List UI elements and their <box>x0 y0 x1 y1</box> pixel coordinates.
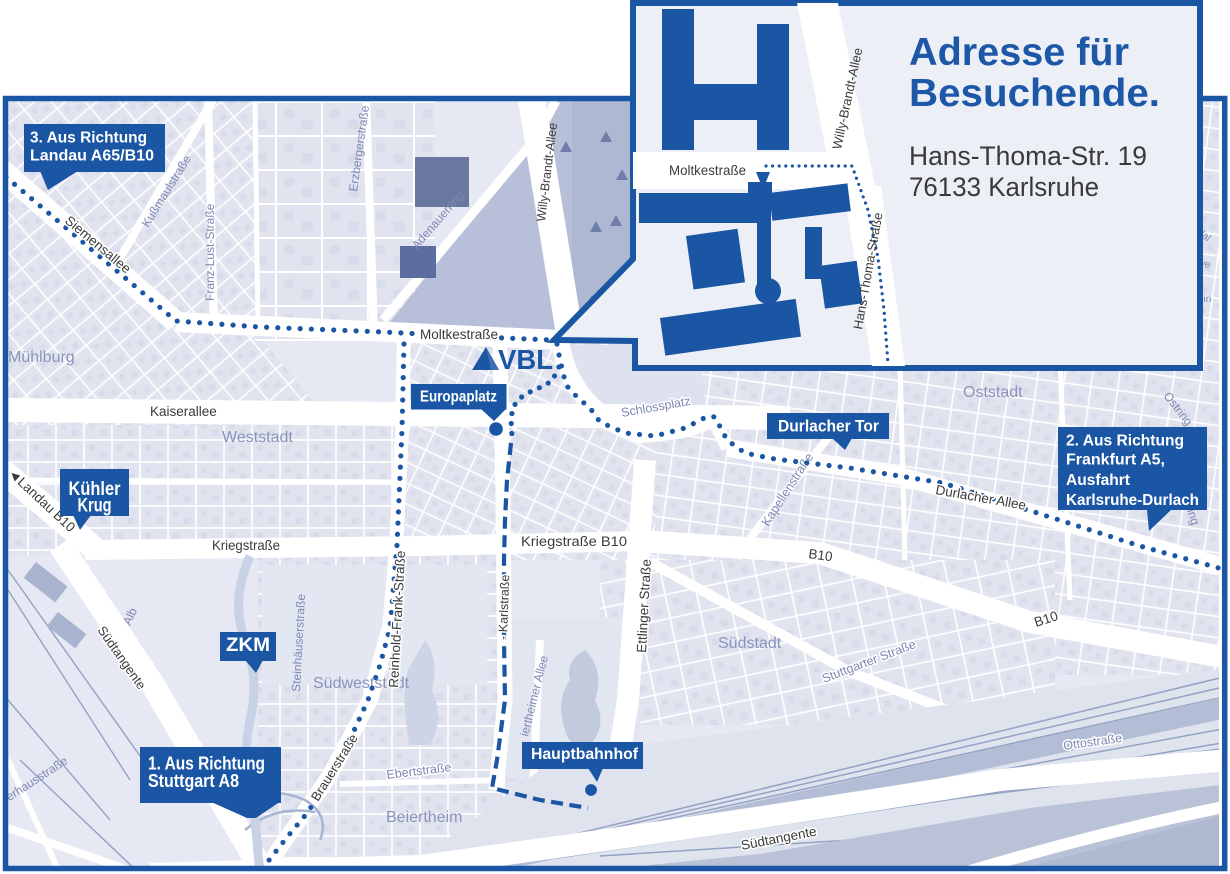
svg-text:Besuchende.: Besuchende. <box>909 72 1160 115</box>
svg-text:Hauptbahnhof: Hauptbahnhof <box>531 746 639 763</box>
svg-text:Beiertheim: Beiertheim <box>386 809 462 826</box>
svg-text:Europaplatz: Europaplatz <box>420 388 497 405</box>
svg-text:Ausfahrt: Ausfahrt <box>1066 472 1131 489</box>
svg-text:Kriegstraße B10: Kriegstraße B10 <box>521 533 627 549</box>
svg-text:ZKM: ZKM <box>226 635 270 656</box>
svg-text:Karlsruhe-Durlach: Karlsruhe-Durlach <box>1066 492 1199 509</box>
svg-text:Adresse für: Adresse für <box>909 31 1129 74</box>
svg-text:2. Aus Richtung: 2. Aus Richtung <box>1066 432 1184 449</box>
svg-text:Kaiserallee: Kaiserallee <box>150 404 217 419</box>
svg-text:76133 Karlsruhe: 76133 Karlsruhe <box>909 172 1099 202</box>
svg-text:Stuttgart A8: Stuttgart A8 <box>148 771 239 791</box>
svg-text:VBL: VBL <box>498 344 553 375</box>
svg-text:3. Aus Richtung: 3. Aus Richtung <box>30 130 147 147</box>
svg-text:- Karlstraße: - Karlstraße <box>496 574 512 640</box>
svg-text:Krug: Krug <box>78 496 112 517</box>
svg-text:Südstadt: Südstadt <box>718 635 782 652</box>
svg-text:Franz-Lust-Straße: Franz-Lust-Straße <box>203 203 217 301</box>
svg-text:Hans-Thoma-Str. 19: Hans-Thoma-Str. 19 <box>909 141 1147 171</box>
svg-text:Mühlburg: Mühlburg <box>8 349 75 366</box>
svg-text:Landau A65/B10: Landau A65/B10 <box>30 148 154 165</box>
svg-text:Durlacher Tor: Durlacher Tor <box>778 417 880 435</box>
svg-text:Moltkestraße: Moltkestraße <box>669 162 746 178</box>
svg-text:Oststadt: Oststadt <box>963 384 1023 401</box>
svg-text:Frankfurt A5,: Frankfurt A5, <box>1066 452 1165 469</box>
svg-text:Weststadt: Weststadt <box>222 429 293 446</box>
svg-text:Moltkestraße: Moltkestraße <box>420 327 498 342</box>
svg-text:Kriegstraße: Kriegstraße <box>212 537 280 553</box>
